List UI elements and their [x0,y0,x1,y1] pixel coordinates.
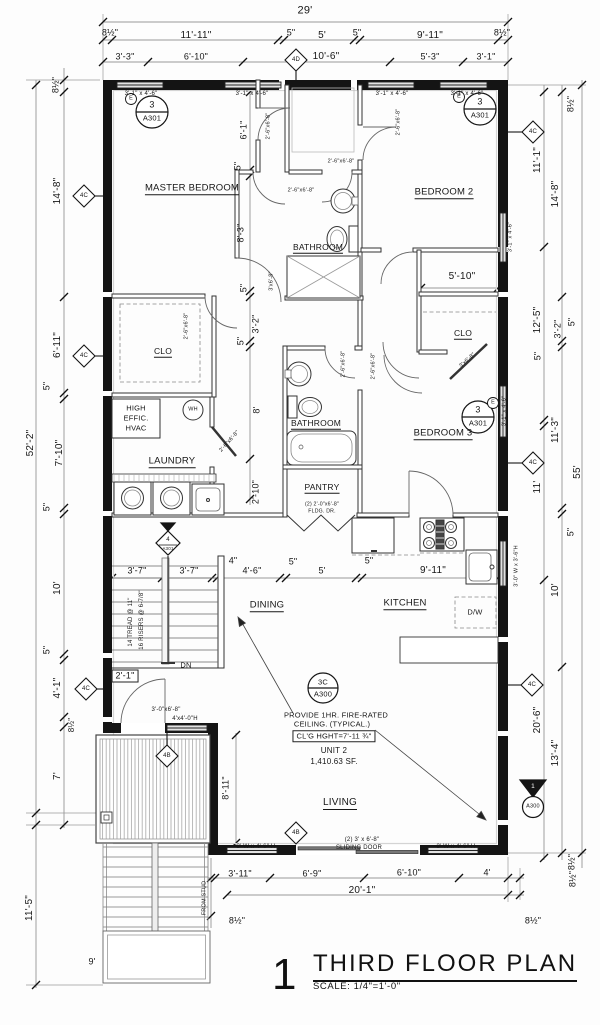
hvac-unit [112,399,160,438]
deck-post [101,812,112,823]
interior-stairs [112,556,224,668]
refrigerator [352,518,394,553]
kitchen-peninsula [400,637,498,663]
toilet-tank [349,226,358,252]
deck [96,735,210,843]
toilet-tank [288,396,297,418]
range-grill [436,520,444,549]
section-marker-diamond [156,531,180,555]
dishwasher [455,597,496,628]
drawing-scale: SCALE: 1/4"=1'-0" [313,981,401,992]
stair-landing [103,931,210,983]
closet-dashed-shelf [120,304,200,382]
floor-plan-sheet: 29'8½"11'-11"5"5'5"9'-11"8½"3'-3"6'-10"1… [0,0,600,1025]
deck-door-opening [121,723,165,733]
laundry-counter-ribs [114,474,214,482]
drawing-title: THIRD FLOOR PLAN [313,950,577,982]
sliding-door [296,845,420,855]
floor-plan-drawing [0,0,600,1025]
section-cut-triangle [520,780,546,797]
exterior-stairs [103,843,210,983]
pantry-folding-door [287,515,355,531]
water-heater [183,400,203,420]
stair-rail [152,843,158,931]
detail-number: 1 [272,950,296,1000]
